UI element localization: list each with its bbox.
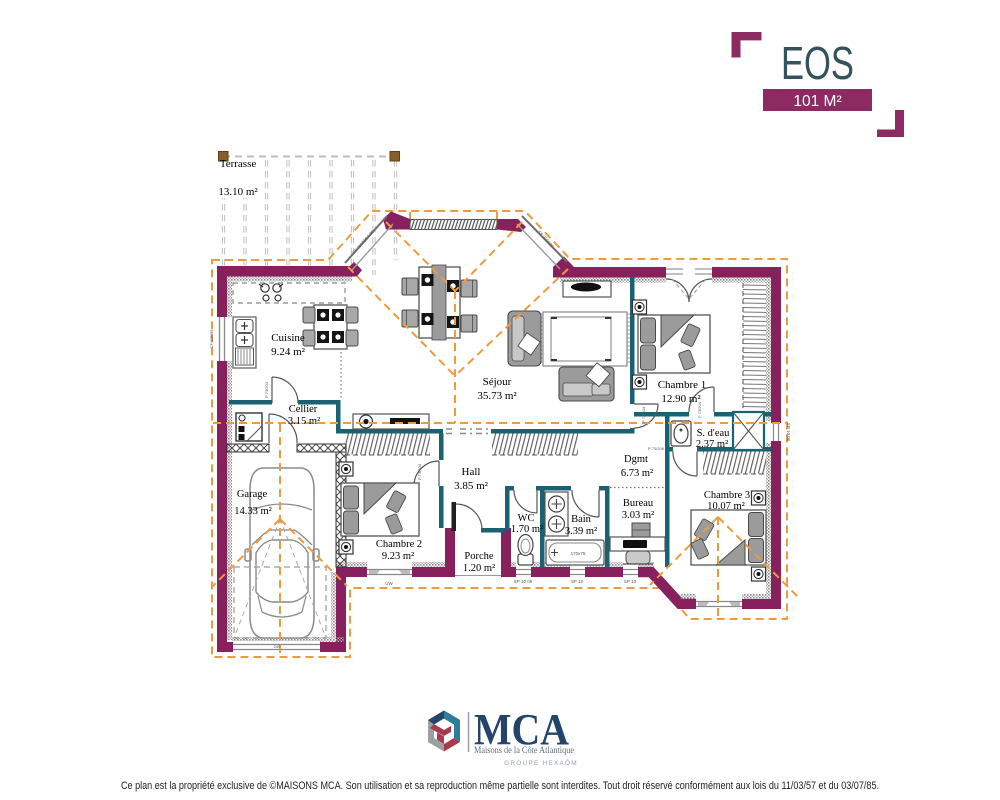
svg-text:240: 240 [274,644,281,649]
svg-text:Bureau: Bureau [623,498,654,509]
svg-text:SP 10 06: SP 10 06 [786,423,791,442]
svg-text:1.70 m²: 1.70 m² [511,524,543,535]
svg-text:Bain: Bain [571,514,592,525]
svg-text:GROUPE HEXAŌM: GROUPE HEXAŌM [504,759,578,767]
svg-text:10.07 m²: 10.07 m² [707,501,745,512]
svg-text:9.23 m²: 9.23 m² [382,551,414,562]
svg-text:P 73/204: P 73/204 [697,401,702,418]
svg-text:Chambre 2: Chambre 2 [376,539,422,550]
svg-text:3.39 m²: 3.39 m² [565,526,597,537]
svg-text:SP 10 06: SP 10 06 [514,579,533,584]
svg-text:13.10 m²: 13.10 m² [218,186,258,198]
svg-text:Ce plan est la propriété exclu: Ce plan est la propriété exclusive de ©M… [121,780,879,792]
svg-text:6.73 m²: 6.73 m² [621,468,653,479]
svg-text:EOS: EOS [781,37,854,89]
svg-text:170x75: 170x75 [571,551,586,556]
svg-text:Cellier: Cellier [289,404,318,415]
svg-text:Chambre 1: Chambre 1 [658,379,707,391]
svg-text:SP 10: SP 10 [624,579,637,584]
svg-text:2.37 m²: 2.37 m² [696,439,728,450]
svg-text:WC: WC [518,513,535,524]
svg-text:Cuisine: Cuisine [271,332,305,344]
svg-text:P 73/206: P 73/206 [648,446,665,451]
svg-text:UW: UW [385,581,393,586]
svg-text:101 M²: 101 M² [793,93,841,110]
svg-text:Porche: Porche [464,551,493,562]
svg-text:P 73/204: P 73/204 [417,463,422,480]
svg-text:P 73/204: P 73/204 [264,381,269,398]
svg-text:S. d'eau: S. d'eau [697,428,731,439]
svg-text:CF 125/95: CF 125/95 [209,329,214,348]
svg-text:SP 10: SP 10 [571,579,584,584]
svg-text:Garage: Garage [237,489,268,500]
svg-text:9.24 m²: 9.24 m² [271,346,306,358]
svg-text:35.73 m²: 35.73 m² [477,390,517,402]
svg-text:12.90 m²: 12.90 m² [661,393,701,405]
svg-text:3.85 m²: 3.85 m² [454,480,489,492]
svg-text:Maisons de la Côte Atlantique: Maisons de la Côte Atlantique [474,746,574,756]
svg-text:Chambre 3: Chambre 3 [704,490,750,501]
svg-text:3.15 m²: 3.15 m² [288,416,320,427]
svg-text:Séjour: Séjour [483,376,512,388]
svg-text:3.03 m²: 3.03 m² [622,510,654,521]
svg-text:Dgmt: Dgmt [624,454,648,465]
svg-text:Hall: Hall [462,466,481,478]
svg-text:1.20 m²: 1.20 m² [463,563,495,574]
svg-text:P 73/204: P 73/204 [641,406,646,423]
svg-text:14.33 m²: 14.33 m² [234,506,272,517]
svg-text:Terrasse: Terrasse [220,158,257,170]
